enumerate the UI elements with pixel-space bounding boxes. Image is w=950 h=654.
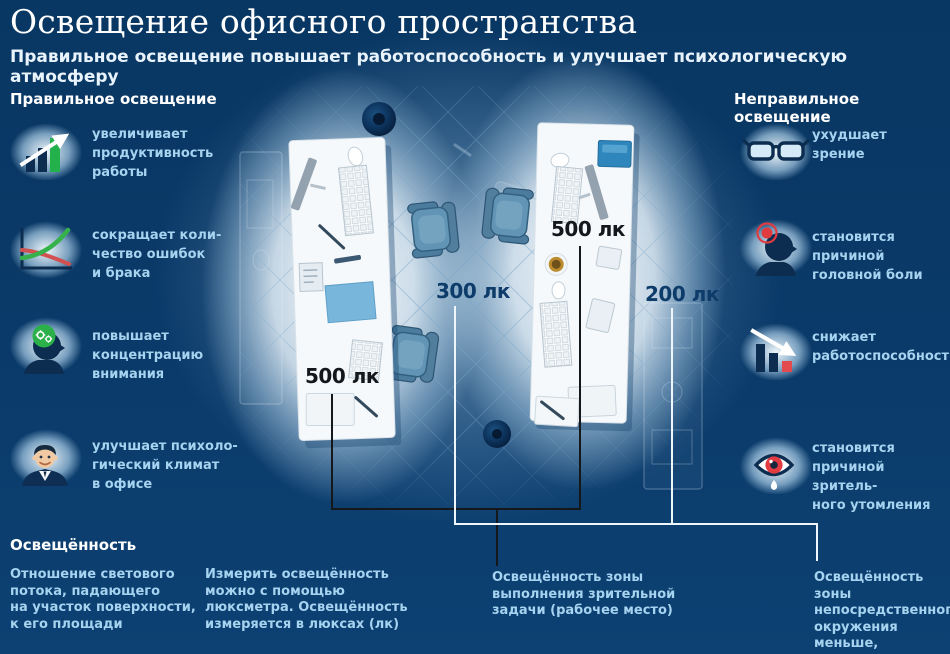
icon-tile: [6, 220, 86, 278]
icon-tile: [736, 436, 816, 494]
icon-tile: [6, 428, 86, 486]
blue-pad: [325, 282, 376, 323]
icon-tile: [6, 122, 86, 180]
icon-tile: [736, 322, 816, 380]
keyboard: [540, 301, 572, 367]
definition-luxmeter: Измерить освещённость можно с помощью лю…: [205, 567, 415, 633]
benefit-text: повышает концентрацию внимания: [92, 327, 242, 384]
glasses-icon: [736, 122, 816, 180]
drawback-text: становится причиной зритель- ного утомле…: [812, 439, 950, 515]
definition-work-zone: Освещённость зоны выполнения зрительной …: [492, 570, 702, 620]
benefit-text: улучшает психоло- гический климат в офис…: [92, 437, 242, 494]
keyboard: [551, 166, 582, 223]
papers: [306, 393, 354, 425]
lux-label-zone-300: 300 лк: [436, 279, 510, 303]
page-title: Освещение офисного пространства: [10, 2, 637, 41]
bar-chart-growth-icon: [6, 122, 86, 180]
left-column-heading: Правильное освещение: [10, 90, 217, 108]
mouse: [552, 282, 565, 299]
office-chair: [481, 186, 533, 245]
drawback-text: снижает работоспособность: [812, 328, 950, 366]
drawback-text: ухудшает зрение: [812, 126, 947, 164]
drawback-text: становится причиной головной боли: [812, 228, 947, 285]
infographic-canvas: 500 лк 500 лк 300 лк 200 лк Освещение оф…: [0, 0, 950, 654]
headache-head-icon: [736, 218, 816, 276]
right-column-heading: Неправильное освещение: [734, 90, 950, 126]
lux-label-desk-right: 500 лк: [551, 217, 625, 241]
happy-employee-icon: [6, 428, 86, 486]
definition-surrounding-zone: Освещённость зоны непосредственного окру…: [814, 570, 946, 654]
phone: [596, 246, 622, 270]
icon-tile: [736, 122, 816, 180]
bar-chart-decline-icon: [736, 322, 816, 380]
benefit-text: увеличивает продуктивность работы: [92, 125, 242, 182]
eye-strain-icon: [736, 436, 816, 494]
icon-tile: [6, 316, 86, 374]
blue-folder: [598, 140, 632, 167]
page-subtitle: Правильное освещение повышает работоспос…: [10, 47, 950, 87]
footer-heading: Освещённость: [10, 536, 136, 554]
icon-tile: [736, 218, 816, 276]
office-chair: [407, 200, 459, 259]
benefit-text: сокращает коли- чество ошибок и брака: [92, 226, 242, 283]
desk-left: [288, 137, 401, 448]
lux-label-desk-left: 500 лк: [305, 364, 379, 388]
focus-head-gears-icon: [6, 316, 86, 374]
desk-organizer: [299, 263, 323, 292]
error-curves-icon: [6, 220, 86, 278]
lux-label-zone-200: 200 лк: [645, 282, 719, 306]
desk-right: [530, 123, 640, 432]
definition-luminous-flux: Отношение светового потока, падающего на…: [10, 567, 200, 633]
